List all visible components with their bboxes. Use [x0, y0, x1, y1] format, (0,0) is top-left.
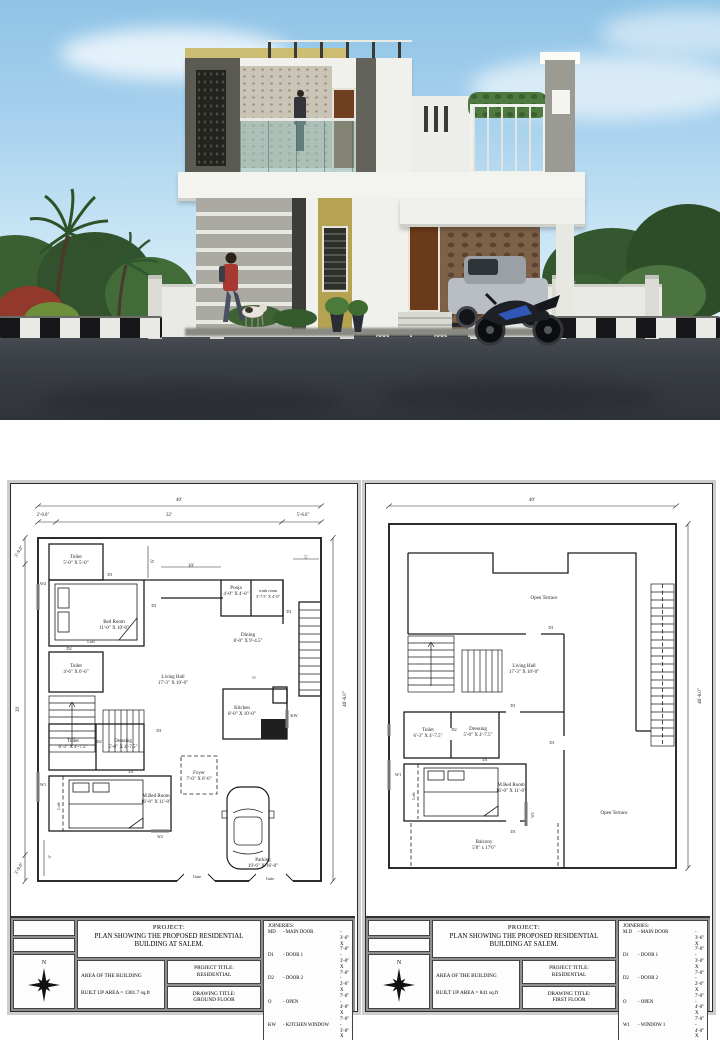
north-arrow-icon	[26, 966, 62, 1004]
title-block-cell	[368, 938, 430, 952]
sheet-ground-floor: 40'2'-6.0"32'5'-6.0"3'-9.0"39'3'-9.0"46'…	[10, 483, 358, 1012]
plan-label: Kitchen 8'-0" X 10'-0"	[228, 706, 256, 718]
ground-floor-labels: 40'2'-6.0"32'5'-6.0"3'-9.0"39'3'-9.0"46'…	[11, 484, 355, 914]
plan-label: Living Hall 17'-3" X 10'-0"	[509, 664, 539, 676]
joinery-row: D1- DOOR 1- 3'-0" X 7'-0"	[623, 953, 705, 976]
plan-label: Loft	[87, 639, 95, 645]
joinery-row: W1- WINDOW 1- 4'-0" X 4'-0"	[623, 1023, 705, 1040]
title-block-cell	[13, 938, 75, 952]
joinery-row: MD- MAIN DOOR- 3'-6" X 7'-0"	[268, 930, 350, 953]
title-block-cell	[368, 920, 430, 936]
project-title-value: RESIDENTIAL	[552, 972, 586, 979]
plan-label: D1	[156, 728, 161, 734]
plan-label: D1	[107, 572, 112, 578]
plan-label: D1	[548, 625, 553, 631]
north-arrow-icon	[381, 966, 417, 1004]
plan-label: Loft	[56, 802, 62, 810]
project-title-cell: PROJECT TITLE: RESIDENTIAL	[167, 960, 261, 984]
plan-label: W1	[40, 782, 46, 788]
title-block-ground: N PROJECT: PLAN SHOWING THE PROPOSED RES…	[11, 916, 355, 1011]
plan-label: D1	[549, 740, 554, 746]
plan-label: Bed Room 11'-0" X 10'-0"	[99, 620, 129, 632]
plan-label: 40'	[176, 498, 182, 504]
plan-label: Dining 8'-0" X 9'-4.5"	[233, 633, 262, 645]
title-block-first: N PROJECT: PLAN SHOWING THE PROPOSED RES…	[366, 916, 710, 1011]
plan-label: Toilet 6'-3" X 4'-7.5"	[413, 728, 442, 740]
plan-label: Open Terrace	[601, 811, 628, 817]
plan-label: Toilet 6'-3" X 4'-7.5"	[58, 739, 87, 751]
joinery-row: D2- DOOR 2- 2'-6" X 7'-0"	[268, 976, 350, 999]
plan-label: 32'	[166, 513, 172, 519]
project-heading: PROJECT:	[78, 924, 260, 931]
north-arrow-cell: N	[13, 954, 75, 1009]
joinery-row: M.D- MAIN DOOR- 3'-6" X 7'-0"	[623, 930, 705, 953]
plan-label: Open Terrace	[531, 596, 558, 602]
area-value: BUILT UP AREA = 841 sq.ft	[436, 990, 516, 996]
project-cell: PROJECT: PLAN SHOWING THE PROPOSED RESID…	[432, 920, 616, 958]
plan-label: Gate	[266, 876, 274, 882]
plan-label: D1	[286, 609, 291, 615]
plan-label: M.Bed Room 16'-0" X 11'-0"	[141, 794, 171, 806]
plan-label: Pooja 4'-0" X 4'-0"	[223, 586, 248, 598]
plan-label: W2	[40, 581, 46, 587]
joinery-row: O- OPEN- 4'-0" X 7'-0"	[623, 1000, 705, 1023]
first-floor-labels: 40'46'-6.0"Open TerraceD1Living Hall 17'…	[366, 484, 710, 914]
plan-label: 10'	[188, 564, 194, 570]
drawing-title-value: FIRST FLOOR	[552, 997, 585, 1004]
plan-label: Balcony 5'0" x 17'6"	[472, 840, 495, 852]
ground-floor-plan: 40'2'-6.0"32'5'-6.0"3'-9.0"39'3'-9.0"46'…	[11, 484, 355, 914]
joinery-row: D1- DOOR 1- 3'-0" X 7'-0"	[268, 953, 350, 976]
project-text: PLAN SHOWING THE PROPOSED RESIDENTIAL BU…	[78, 931, 260, 949]
plan-label: Loft	[411, 792, 417, 800]
plan-label: W1	[395, 772, 401, 778]
foreground-figures	[0, 0, 720, 420]
plan-label: W2	[157, 834, 163, 840]
project-text: PLAN SHOWING THE PROPOSED RESIDENTIAL BU…	[433, 931, 615, 949]
plan-label: 3'	[47, 855, 53, 858]
first-floor-plan: 40'46'-6.0"Open TerraceD1Living Hall 17'…	[366, 484, 710, 914]
joineries-heading: JOINERIES:	[268, 924, 350, 929]
joineries-table: M.D- MAIN DOOR- 3'-6" X 7'-0"D1- DOOR 1-…	[623, 930, 705, 1040]
plan-label: wash room 3'-7.5" X 4'-0"	[256, 588, 280, 600]
plan-label: Foyer 7'-0" X 6'-0"	[186, 771, 211, 783]
plan-label: D1	[128, 769, 133, 775]
drawing-title-value: GROUND FLOOR	[193, 997, 234, 1004]
area-cell: AREA OF THE BUILDING BUILT UP AREA = 138…	[77, 960, 165, 1009]
drawing-title-cell: DRAWING TITLE: GROUND FLOOR	[167, 986, 261, 1010]
plan-label: D1	[510, 703, 515, 709]
plan-label: Living Hall 17'-3" X 10'-0"	[158, 675, 188, 687]
north-arrow-cell: N	[368, 954, 430, 1009]
plan-label: Toilet 5'-0" X 5'-0"	[63, 555, 88, 567]
drawing-title-cell: DRAWING TITLE: FIRST FLOOR	[522, 986, 616, 1010]
plan-label: 2'-6.0"	[37, 513, 50, 519]
project-title-cell: PROJECT TITLE: RESIDENTIAL	[522, 960, 616, 984]
plan-label: D2	[451, 727, 456, 733]
plan-label: KW	[290, 713, 297, 719]
plan-label: Dressing 5'-0" X 4'-7.5"	[108, 739, 137, 751]
area-heading: AREA OF THE BUILDING	[81, 973, 161, 979]
plan-label: D1	[151, 603, 156, 609]
plan-label: Toilet 4'-6" X 6'-6"	[63, 664, 88, 676]
area-heading: AREA OF THE BUILDING	[436, 973, 516, 979]
plan-label: D2	[96, 739, 101, 745]
plan-label: M.Bed Room 16'-0" X 11'-0"	[496, 783, 526, 795]
joineries-heading: JOINERIES:	[623, 924, 705, 929]
plan-label: 3'-9.0"	[14, 862, 25, 876]
plan-label: 5'-6.0"	[297, 513, 310, 519]
project-title-value: RESIDENTIAL	[197, 972, 231, 979]
plan-label: 6'	[151, 559, 157, 562]
sheet-first-floor: 40'46'-6.0"Open TerraceD1Living Hall 17'…	[365, 483, 713, 1012]
joineries-cell: JOINERIES: M.D- MAIN DOOR- 3'-6" X 7'-0"…	[618, 920, 708, 1040]
plan-label: 5'	[304, 556, 307, 562]
joineries-cell: JOINERIES: MD- MAIN DOOR- 3'-6" X 7'-0"D…	[263, 920, 353, 1040]
plan-label: D1	[510, 829, 515, 835]
title-block-cell	[13, 920, 75, 936]
plan-label: 46'-6.0"	[343, 691, 349, 707]
joineries-table: MD- MAIN DOOR- 3'-6" X 7'-0"D1- DOOR 1- …	[268, 930, 350, 1040]
page: DHAMOTHIRAN RESIDENCE D.NO - 347	[0, 0, 720, 1040]
plan-label: W1	[530, 812, 536, 818]
area-value: BUILT UP AREA = 1381.7 sq.ft	[81, 990, 161, 996]
area-cell: AREA OF THE BUILDING BUILT UP AREA = 841…	[432, 960, 520, 1009]
joinery-row: D2- DOOR 2- 2'-6" X 7'-0"	[623, 976, 705, 999]
joinery-row: KW- KITCHEN WINDOW- 3'-0" X 3'-0"	[268, 1023, 350, 1040]
plan-label: Parking 19'-6" X 16'-0"	[248, 858, 278, 870]
plan-label: Gate	[193, 874, 201, 880]
plan-label: O	[252, 675, 255, 681]
plan-label: 40'	[529, 498, 535, 504]
plan-label: 39'	[16, 706, 22, 712]
plan-label: 3'-9.0"	[14, 545, 25, 559]
plan-label: 46'-6.0"	[698, 688, 704, 704]
exterior-render: DHAMOTHIRAN RESIDENCE D.NO - 347	[0, 0, 720, 420]
plan-label: Dressing 5'-0" X 4'-7.5"	[463, 727, 492, 739]
joinery-row: O- OPEN- 4'-0" X 7'-0"	[268, 1000, 350, 1023]
plan-label: D1	[482, 757, 487, 763]
project-cell: PROJECT: PLAN SHOWING THE PROPOSED RESID…	[77, 920, 261, 958]
project-heading: PROJECT:	[433, 924, 615, 931]
plan-label: D2	[66, 646, 71, 652]
